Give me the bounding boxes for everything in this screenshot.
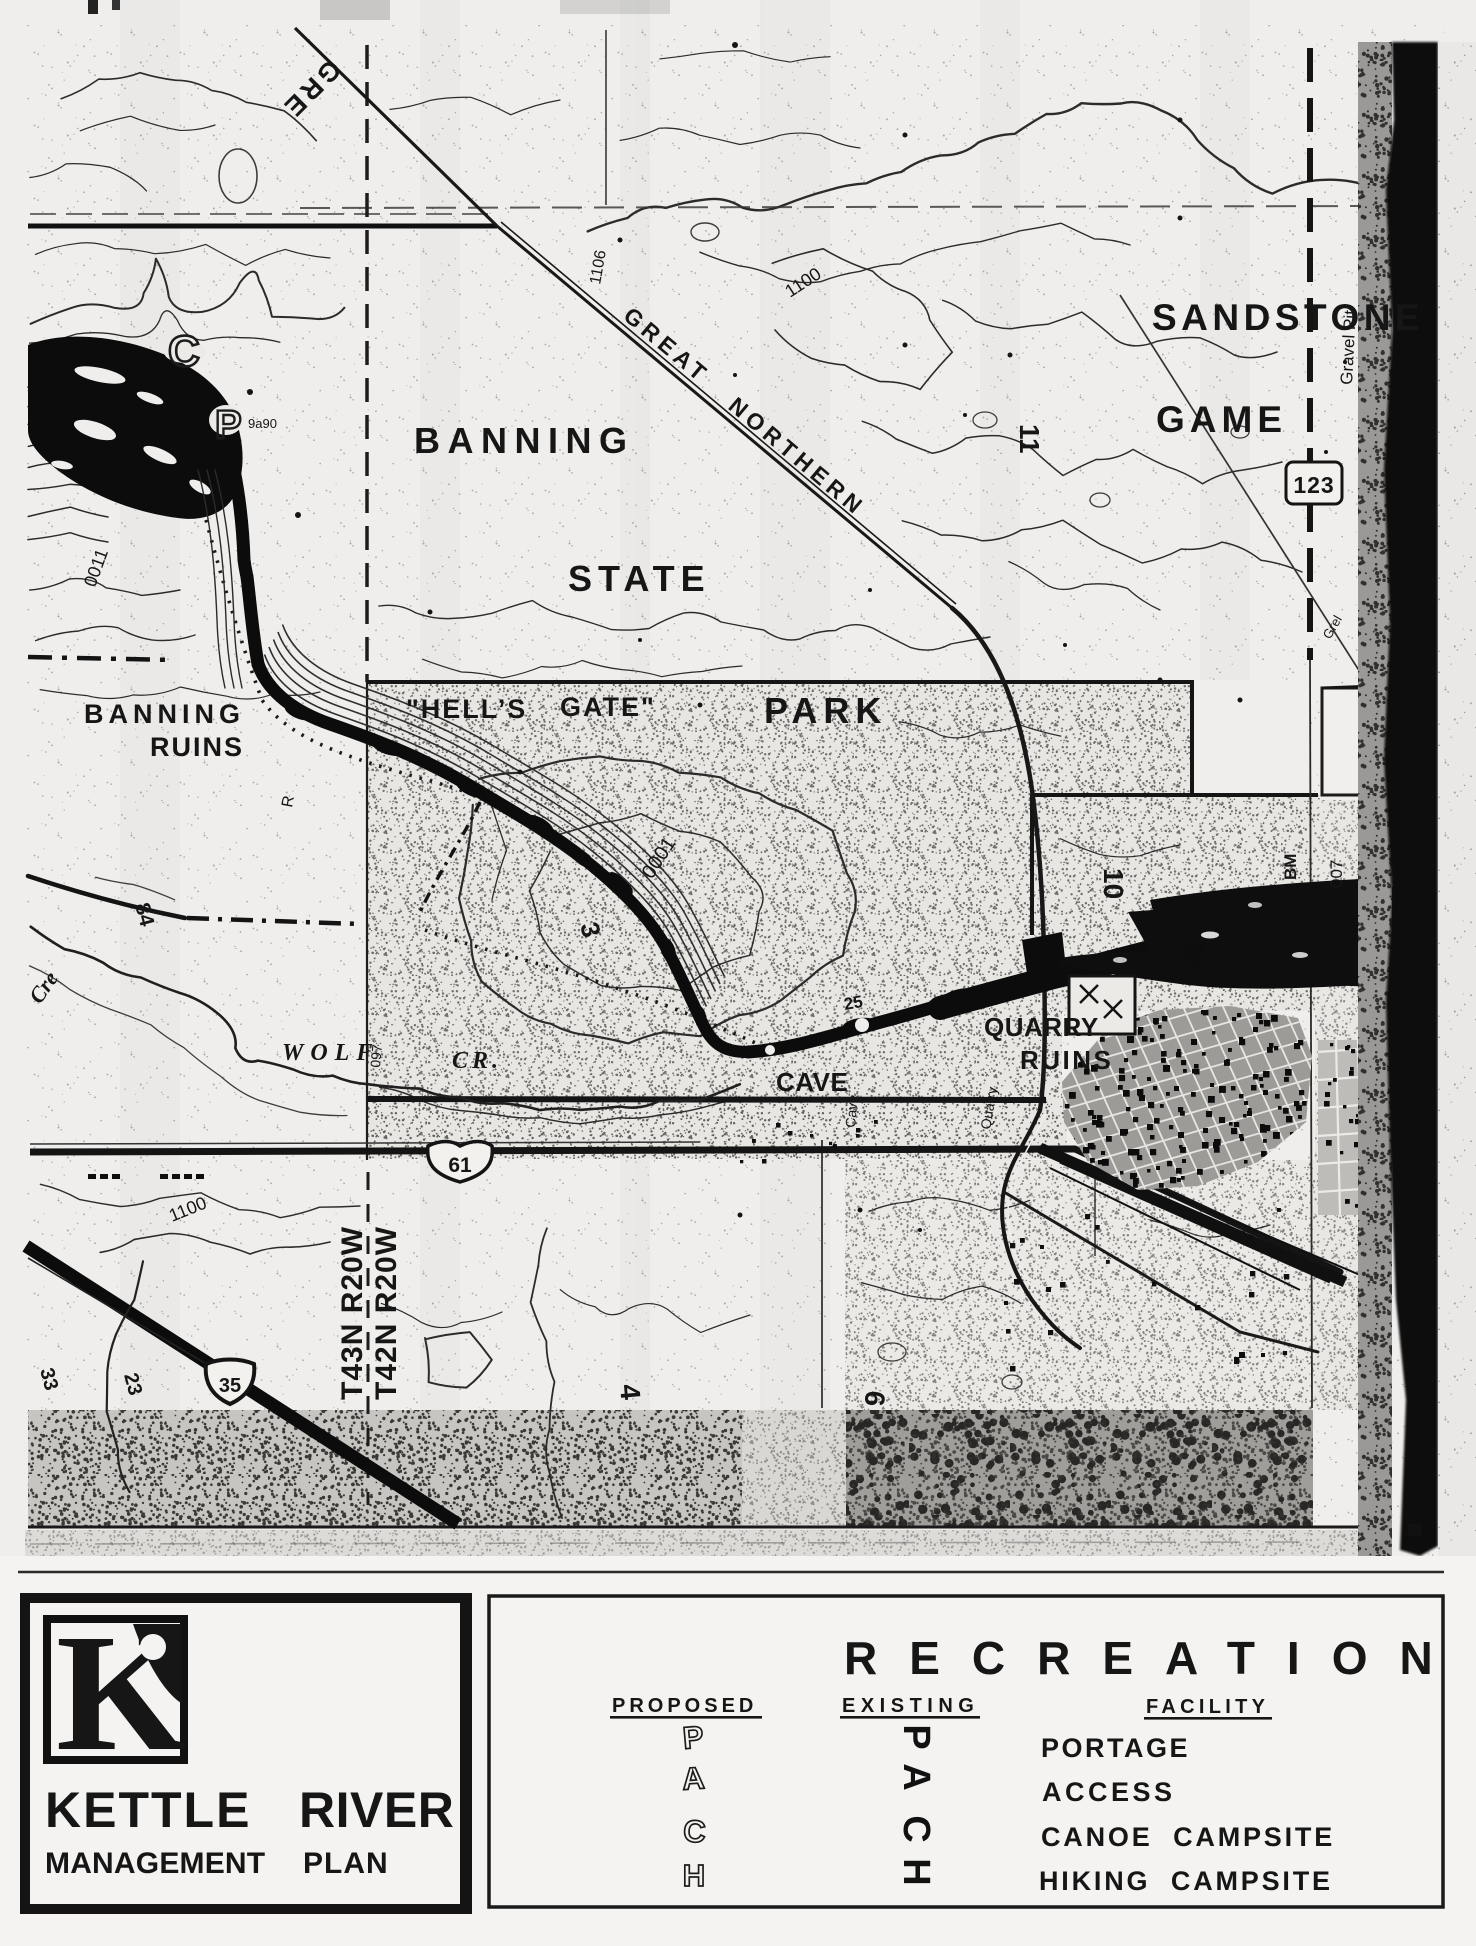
svg-text:BANNING: BANNING xyxy=(84,699,245,729)
svg-text:P: P xyxy=(215,403,242,447)
svg-text:QUARRY: QUARRY xyxy=(984,1012,1099,1042)
svg-text:HIKING CAMPSITE: HIKING CAMPSITE xyxy=(1039,1866,1333,1896)
svg-text:WOLF: WOLF xyxy=(282,1040,379,1066)
svg-text:6: 6 xyxy=(859,1389,891,1407)
svg-text:P: P xyxy=(681,1719,705,1756)
svg-text:PROPOSED: PROPOSED xyxy=(612,1695,757,1717)
svg-text:PORTAGE: PORTAGE xyxy=(1041,1733,1190,1763)
svg-text:BANNING: BANNING xyxy=(414,420,635,461)
svg-text:GAME: GAME xyxy=(1156,399,1287,440)
svg-text:Gravel Pit: Gravel Pit xyxy=(1337,309,1360,385)
svg-text:CANOE CAMPSITE: CANOE CAMPSITE xyxy=(1041,1822,1335,1852)
svg-text:H: H xyxy=(683,1858,705,1893)
svg-text:SANDSTONE: SANDSTONE xyxy=(1152,297,1424,338)
svg-text:ACCESS: ACCESS xyxy=(1042,1777,1176,1807)
svg-text:MANAGEMENT: MANAGEMENT xyxy=(45,1847,265,1880)
svg-text:FACILITY: FACILITY xyxy=(1146,1696,1269,1718)
svg-text:CAVE: CAVE xyxy=(776,1067,848,1097)
svg-text:T43N R20W: T43N R20W xyxy=(336,1226,369,1400)
svg-text:EXISTING: EXISTING xyxy=(842,1695,979,1717)
svg-text:PARK: PARK xyxy=(764,690,887,731)
svg-text:RUINS: RUINS xyxy=(1020,1045,1113,1075)
svg-text:RECREATION: RECREATION xyxy=(844,1632,1465,1684)
svg-text:A: A xyxy=(895,1763,937,1790)
svg-text:10: 10 xyxy=(1098,868,1129,899)
svg-text:STATE: STATE xyxy=(568,558,711,599)
svg-text:Cave: Cave xyxy=(842,1094,861,1128)
svg-text:C: C xyxy=(168,327,200,376)
svg-text:BM: BM xyxy=(1281,854,1300,880)
svg-text:GATE": GATE" xyxy=(560,692,656,722)
svg-text:11: 11 xyxy=(1014,424,1045,454)
svg-text:4: 4 xyxy=(614,1383,646,1402)
svg-text:61: 61 xyxy=(448,1154,472,1177)
svg-text:PLAN: PLAN xyxy=(303,1847,389,1880)
svg-text:RIVER: RIVER xyxy=(299,1782,454,1838)
svg-text:RUINS: RUINS xyxy=(150,732,244,762)
svg-text:H: H xyxy=(895,1858,937,1885)
svg-text:35: 35 xyxy=(219,1375,241,1397)
svg-text:"HELL’S: "HELL’S xyxy=(406,694,527,724)
svg-text:T42N R20W: T42N R20W xyxy=(370,1226,403,1400)
svg-text:KETTLE: KETTLE xyxy=(45,1782,251,1838)
svg-text:C: C xyxy=(682,1813,706,1849)
svg-text:123: 123 xyxy=(1293,472,1334,498)
svg-text:25: 25 xyxy=(842,992,864,1014)
svg-text:007: 007 xyxy=(1327,860,1346,888)
svg-text:A: A xyxy=(681,1760,706,1796)
svg-text:C: C xyxy=(895,1815,937,1842)
svg-text:P: P xyxy=(895,1724,937,1749)
svg-text:097: 097 xyxy=(367,1043,385,1068)
svg-text:CR.: CR. xyxy=(452,1048,502,1074)
svg-text:9a90: 9a90 xyxy=(248,416,277,431)
